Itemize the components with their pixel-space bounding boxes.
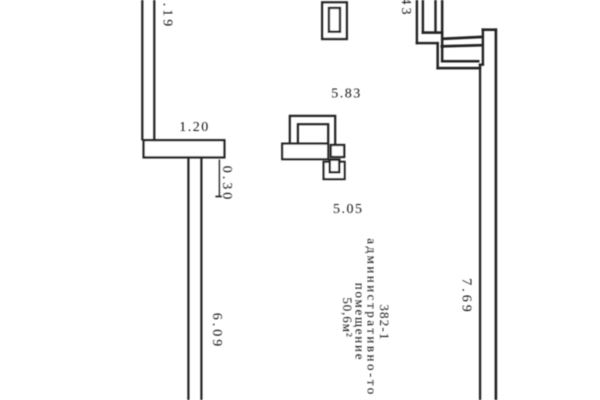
svg-text:50,6м²: 50,6м² bbox=[340, 297, 355, 337]
svg-text:1.19: 1.19 bbox=[160, 0, 175, 29]
svg-text:6.09: 6.09 bbox=[209, 313, 224, 350]
svg-text:5.05: 5.05 bbox=[333, 202, 364, 217]
svg-text:7.69: 7.69 bbox=[459, 278, 474, 315]
svg-text:43: 43 bbox=[398, 0, 413, 18]
svg-text:0.30: 0.30 bbox=[219, 166, 234, 203]
svg-text:1.20: 1.20 bbox=[179, 120, 210, 135]
svg-text:5.83: 5.83 bbox=[331, 87, 362, 102]
